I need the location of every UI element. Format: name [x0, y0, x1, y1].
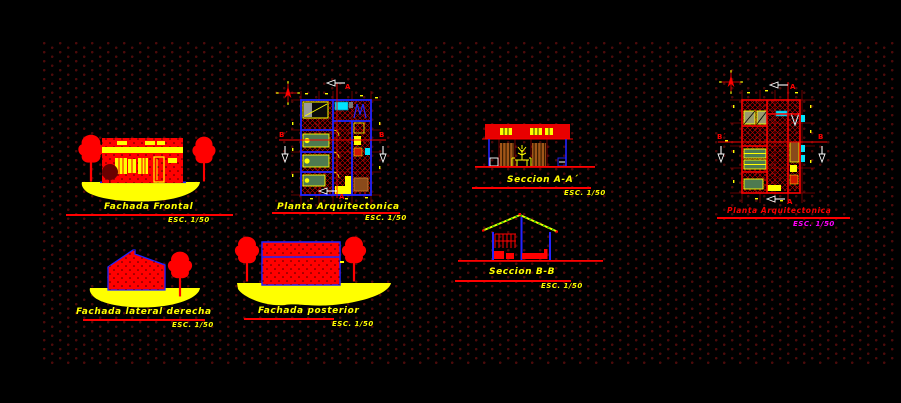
section-arrow-icon	[380, 146, 386, 162]
drawing-title: Planta Arquitectonica	[727, 206, 831, 215]
drawing-fachada-frontal: Fachada Frontal ESC. 1/50	[60, 125, 240, 230]
house	[102, 138, 183, 183]
seccion-bb-art	[450, 210, 615, 264]
cad-sheet: Fachada Frontal ESC. 1/50	[0, 0, 901, 403]
drawing-fachada-lateral: Fachada lateral derecha ESC. 1/50	[60, 240, 220, 335]
tree-icon	[342, 237, 366, 282]
seccion-aa-art	[460, 120, 610, 172]
house	[108, 250, 165, 290]
section-arrow-icon	[819, 146, 825, 162]
left-fixture	[490, 158, 498, 166]
drawing-planta-arquitectonica-2: A A B´ B Planta Arquitectonica ESC. 1/50	[705, 60, 865, 235]
drawing-title: Seccion B-B	[489, 267, 555, 277]
scale-label: ESC. 1/50	[332, 320, 374, 328]
section-letter: B´	[717, 133, 726, 141]
ground	[82, 182, 200, 202]
drawing-title: Fachada lateral derecha	[76, 307, 212, 317]
ground-line	[475, 166, 595, 168]
section-arrow-icon	[327, 80, 345, 86]
section-letter: A	[339, 193, 345, 201]
interior	[489, 139, 566, 166]
fachada-lateral-art	[60, 240, 220, 310]
scale-label: ESC. 1/50	[564, 189, 606, 197]
drawing-title: Fachada posterior	[258, 306, 359, 316]
scale-label: ESC. 1/50	[541, 282, 583, 290]
scale-label: ESC. 1/50	[793, 220, 835, 228]
tree-icon	[192, 137, 215, 182]
section-arrow-icon	[282, 146, 288, 162]
section-arrow-icon	[770, 82, 788, 88]
section-letter: B	[818, 133, 823, 141]
scale-label: ESC. 1/50	[172, 321, 214, 329]
house	[262, 242, 344, 285]
ground-line	[458, 260, 603, 262]
ground	[90, 288, 200, 307]
planta-art: A A B´ B	[275, 78, 390, 202]
section-letter: B´	[279, 131, 288, 139]
tree-icon	[235, 237, 259, 282]
tree-icon	[78, 135, 103, 182]
north-symbol-icon	[719, 70, 743, 94]
title-underline	[244, 318, 334, 320]
closet	[495, 234, 516, 248]
drawing-planta-arquitectonica: A A B´ B Planta Arquitectonica ESC. 1/50	[275, 78, 405, 223]
scale-label: ESC. 1/50	[365, 214, 407, 222]
drawing-title: Fachada Frontal	[104, 202, 193, 212]
north-symbol-icon	[276, 81, 300, 105]
section-arrow-icon	[718, 146, 724, 162]
title-underline	[717, 217, 850, 219]
ground	[237, 283, 391, 306]
plant-icon	[518, 145, 526, 160]
fachada-posterior-art	[225, 235, 400, 311]
drawing-seccion-bb: Seccion B-B ESC. 1/50	[450, 210, 615, 295]
section-letter: A	[790, 83, 796, 91]
drawing-title: Planta Arquitectonica	[277, 202, 400, 212]
drawing-title: Seccion A-A´	[507, 175, 578, 185]
planta2-art: A A B´ B	[705, 60, 865, 206]
section-letter: A	[787, 198, 793, 206]
section-letter: A	[345, 83, 351, 91]
roof-band	[482, 124, 573, 139]
right-fixture	[558, 158, 566, 166]
section-letter: B	[379, 131, 384, 139]
drawing-seccion-aa: Seccion A-A´ ESC. 1/50	[460, 120, 610, 200]
scale-label: ESC. 1/50	[168, 216, 210, 224]
roof	[482, 213, 558, 233]
drawing-fachada-posterior: Fachada posterior ESC. 1/50	[225, 235, 400, 335]
